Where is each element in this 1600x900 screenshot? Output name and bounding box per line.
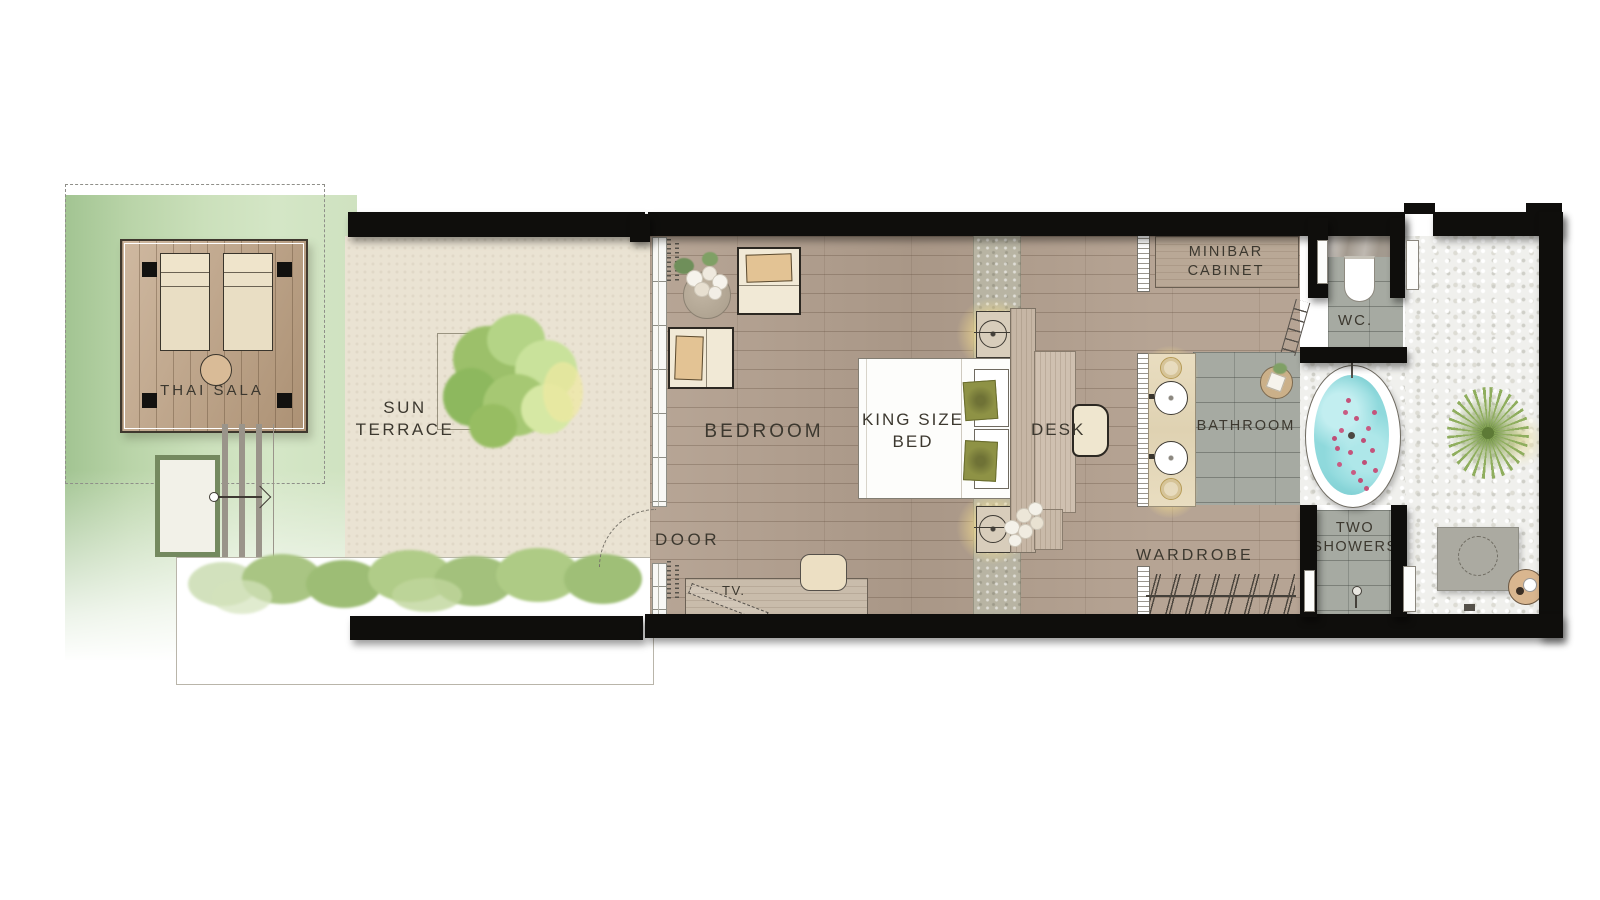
table-lamp-axis [974, 332, 1011, 333]
label-king-bed: KING SIZE BED [857, 409, 969, 453]
curtain-icon [675, 565, 679, 601]
sink-basin [1154, 441, 1188, 475]
glass-sliding-wall [652, 237, 667, 507]
label-minibar: MINIBAR CABINET [1155, 243, 1297, 280]
shower-door-leaf [1403, 566, 1416, 612]
tree [425, 308, 600, 463]
bathtub [1305, 365, 1401, 508]
entry-arrow-origin [209, 492, 219, 502]
vanity-lamp-icon [1160, 478, 1182, 500]
glass-sliding-wall [652, 563, 667, 615]
sink-basin [1154, 381, 1188, 415]
terrace-wall-top [348, 212, 645, 237]
palm-plant [1447, 387, 1529, 479]
label-two-showers: TWO SHOWERS [1305, 519, 1405, 556]
mat-dashed-circle [1458, 536, 1498, 576]
armchair-pillow [746, 253, 793, 283]
bench-stool [800, 554, 847, 591]
towel [1266, 372, 1287, 393]
label-wardrobe: WARDROBE [1136, 546, 1254, 566]
label-wc: WC. [1338, 311, 1373, 330]
label-desk: DESK [1031, 419, 1085, 441]
armchair-pillow [674, 336, 704, 381]
label-tv: TV. [722, 583, 746, 600]
wall-bottom-main [645, 614, 1563, 638]
minibar-slat-door [1137, 233, 1150, 292]
wall-top-main [648, 212, 1405, 236]
vanity-lamp-icon [1160, 357, 1182, 379]
shower-door-leaf [1304, 570, 1315, 612]
stone-mat [1437, 527, 1519, 591]
wall-right [1539, 212, 1563, 638]
curtain-icon [667, 239, 671, 283]
terrace-wall-bottom [350, 616, 643, 640]
wardrobe-hangers-icon [1150, 574, 1295, 618]
rose-petals [1346, 398, 1351, 403]
toilet-icon [1344, 256, 1375, 302]
deck-post [277, 262, 292, 277]
sun-lounger [223, 253, 273, 351]
sink-faucet-icon [1149, 454, 1154, 459]
curtain-icon [667, 561, 671, 601]
armchair [737, 247, 801, 315]
wall-pier [1404, 203, 1435, 214]
stool-item [1523, 578, 1537, 592]
stool-item-dark [1516, 587, 1524, 595]
armchair-seat-line [739, 285, 799, 286]
wc-door-leaf [1317, 240, 1328, 284]
label-bedroom: BEDROOM [702, 420, 826, 444]
sun-lounger [160, 253, 210, 351]
desk-bouquet [1002, 500, 1050, 550]
wardrobe-slat-door [1137, 566, 1150, 620]
hedge [182, 540, 646, 620]
shower-head-icon [1352, 586, 1362, 596]
tub-drain-icon [1348, 432, 1355, 439]
label-door: DOOR [655, 529, 720, 551]
label-bathroom: BATHROOM [1191, 417, 1301, 436]
armchair-seat-line [706, 329, 707, 387]
sink-faucet-icon [1149, 394, 1154, 399]
court-drain-icon [1464, 604, 1475, 611]
wall-wc-bottom [1300, 347, 1407, 363]
wall-corner-block [630, 214, 650, 242]
tub-faucet-icon [1351, 363, 1353, 378]
label-thai-sala: THAI SALA [120, 381, 304, 400]
palm-center [1482, 427, 1494, 439]
floor-plan-canvas: THAI SALA SUN TERRACE [0, 0, 1600, 900]
deck-post [142, 262, 157, 277]
thai-sala-deck [120, 239, 308, 433]
wc-marble-threshold [1328, 236, 1392, 257]
flower-bouquet [672, 252, 734, 310]
court-door-leaf [1406, 240, 1419, 290]
armchair [668, 327, 734, 389]
shower-head-stem [1355, 595, 1357, 608]
table-lamp-icon [979, 320, 1007, 348]
wall-wc-right-post [1390, 218, 1405, 298]
towel-table [1260, 366, 1293, 399]
